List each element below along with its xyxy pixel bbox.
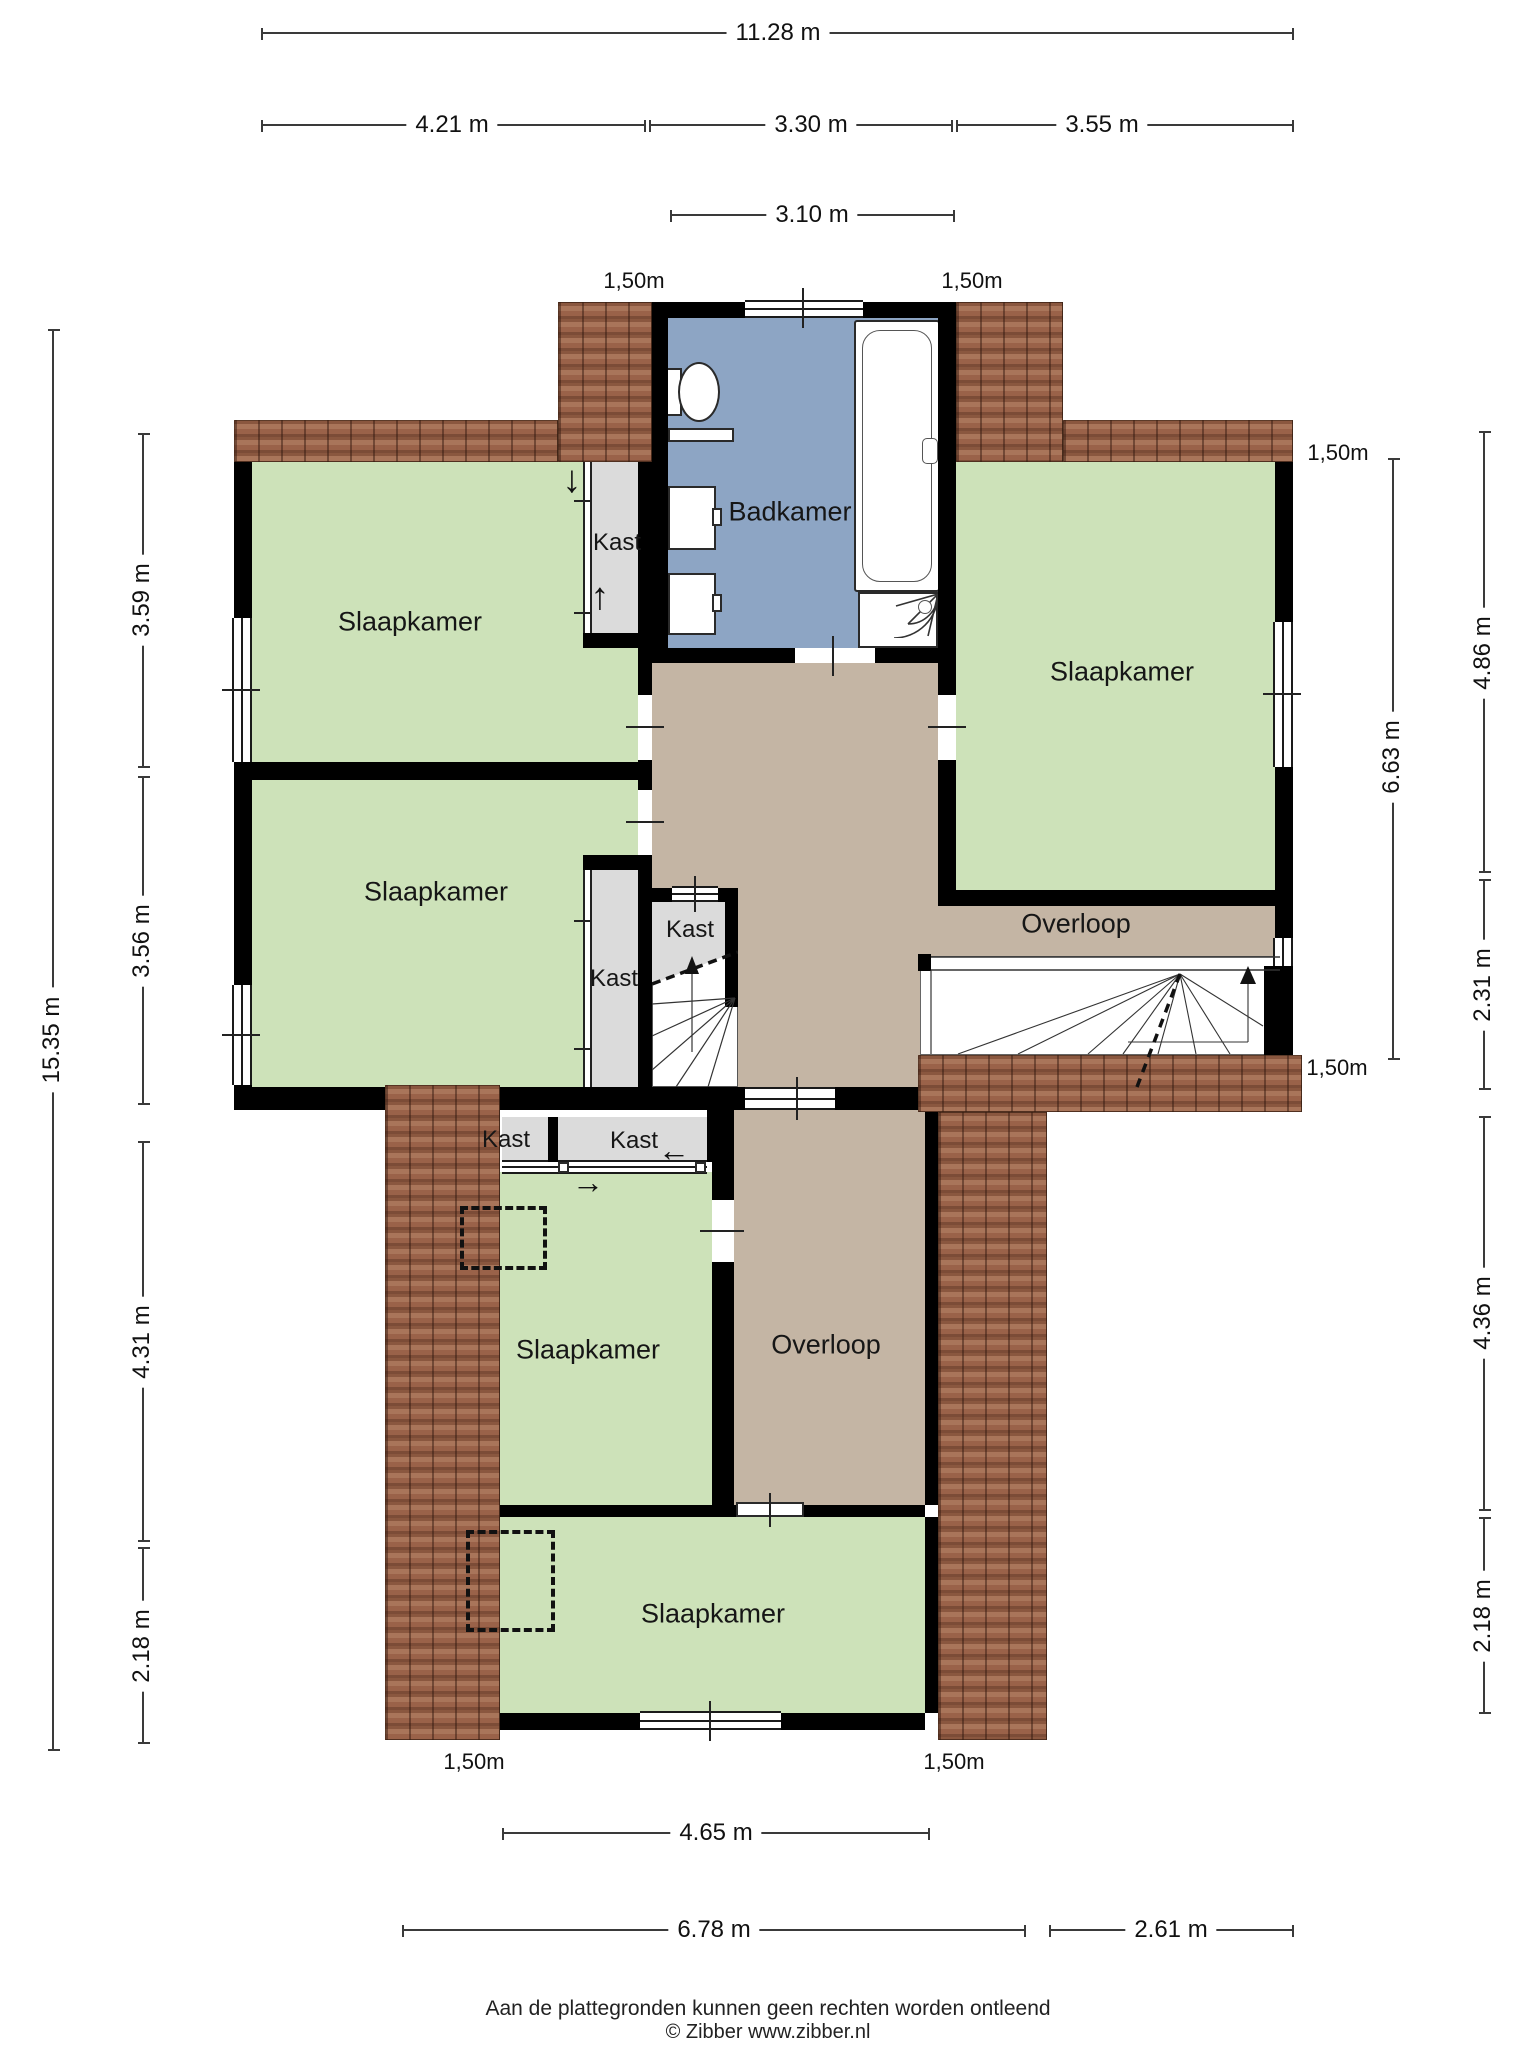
closet-arrow-up-icon: ↑	[591, 578, 610, 616]
dim-label-right-2: 2.31 m	[1469, 939, 1497, 1030]
dim-label-left-4: 2.18 m	[128, 1600, 156, 1691]
wall	[835, 1087, 920, 1110]
closet-label-top: Kast	[593, 529, 641, 557]
wall	[875, 648, 938, 663]
height-marker-right-mid: 1,50m	[1306, 1055, 1367, 1081]
dashed-kneewall-bottom	[466, 1530, 555, 1632]
wall	[781, 1713, 925, 1730]
door-tick	[832, 636, 834, 676]
sink-icon	[668, 573, 716, 635]
shower-fan-icon	[894, 594, 938, 638]
wall	[938, 760, 956, 906]
wall	[500, 1505, 736, 1517]
wall	[500, 1713, 640, 1730]
closet-label-lower-left: Kast	[482, 1126, 530, 1154]
sink-faucet-icon	[712, 508, 722, 526]
wall	[234, 455, 252, 618]
window-tick	[222, 689, 260, 691]
height-marker-bottom-right: 1,50m	[923, 1749, 984, 1775]
window	[745, 1087, 835, 1110]
room-label-bathroom: Badkamer	[728, 497, 851, 528]
wall	[583, 855, 652, 870]
door-tick	[928, 726, 966, 728]
window-tick	[802, 288, 804, 328]
closet-label-tall: Kast	[590, 965, 638, 993]
room-label-bedroom-mid-left: Slaapkamer	[364, 877, 508, 908]
room-label-landing-upper: Overloop	[1021, 909, 1131, 940]
dim-label-top-left: 4.21 m	[406, 111, 497, 139]
wall	[583, 633, 652, 648]
door-tick	[626, 821, 664, 823]
door-tick	[700, 1230, 744, 1232]
wall	[938, 663, 956, 695]
roof-strip-left	[385, 1085, 500, 1740]
wall	[804, 1505, 925, 1517]
wall	[956, 890, 1293, 906]
closet-arrow-left-icon: ←	[658, 1134, 690, 1166]
dim-label-bottom-right: 2.61 m	[1125, 1916, 1216, 1944]
dim-label-left-total: 15.35 m	[38, 988, 66, 1093]
wall	[938, 302, 956, 663]
toilet-bowl-icon	[678, 362, 720, 422]
window-tick	[709, 1701, 711, 1741]
dashed-kneewall-lower	[460, 1206, 547, 1270]
track-tick	[574, 920, 592, 922]
roof-band-top-right	[1063, 420, 1293, 462]
wall	[234, 762, 252, 985]
height-marker-top-right: 1,50m	[941, 268, 1002, 294]
track-end-square	[695, 1162, 706, 1173]
height-marker-bottom-left: 1,50m	[443, 1749, 504, 1775]
dim-label-right-3: 4.36 m	[1469, 1267, 1497, 1358]
footer-copyright: © Zibber www.zibber.nl	[0, 2021, 1536, 2044]
dim-label-right-4: 2.18 m	[1469, 1570, 1497, 1661]
roof-dormer-left	[558, 302, 652, 462]
wall	[1275, 767, 1293, 940]
track-end-square	[558, 1162, 569, 1173]
wall	[548, 1117, 558, 1162]
bathroom-shelf	[668, 428, 734, 442]
dim-label-right-inner: 6.63 m	[1378, 711, 1406, 802]
dim-label-left-3: 4.31 m	[128, 1296, 156, 1387]
wall	[712, 1262, 734, 1505]
wall	[718, 888, 738, 902]
wall	[707, 1110, 734, 1162]
window-tick	[222, 1034, 260, 1036]
dim-label-top-right: 3.55 m	[1056, 111, 1147, 139]
floorplan-canvas: ↓ ↑ ← → Slaapkamer Slaapkamer Slaapkamer…	[0, 0, 1536, 2048]
height-marker-right-top: 1,50m	[1307, 440, 1368, 466]
footer-disclaimer: Aan de plattegronden kunnen geen rechten…	[0, 1997, 1536, 2021]
dim-label-right-1: 4.86 m	[1469, 607, 1497, 698]
dim-label-left-1: 3.59 m	[128, 554, 156, 645]
room-label-bedroom-bottom: Slaapkamer	[641, 1599, 785, 1630]
sink-faucet-icon	[712, 594, 722, 612]
roof-band-top-left	[234, 420, 558, 462]
height-marker-top-left: 1,50m	[603, 268, 664, 294]
wall	[638, 855, 652, 1087]
wall	[234, 762, 652, 780]
track-tick	[574, 1048, 592, 1050]
shower-head-icon	[918, 600, 932, 614]
sink-icon	[668, 486, 716, 550]
door-tick	[626, 726, 664, 728]
closet-arrow-down-icon: ↓	[563, 461, 582, 499]
wall	[925, 1112, 938, 1505]
wall	[925, 1517, 938, 1713]
door-tick	[769, 1493, 771, 1527]
closet-label-lower-right: Kast	[610, 1127, 658, 1155]
dim-label-top-mid: 3.30 m	[765, 111, 856, 139]
room-label-bedroom-top-right: Slaapkamer	[1050, 657, 1194, 688]
bathtub-faucet-icon	[922, 438, 938, 464]
dim-label-dormer: 3.10 m	[766, 201, 857, 229]
roof-strip-right	[938, 1112, 1047, 1740]
roof-dormer-right	[956, 302, 1063, 462]
track-tick	[574, 612, 592, 614]
wall	[1275, 455, 1293, 622]
dim-label-left-2: 3.56 m	[128, 895, 156, 986]
room-fill-landing-lower	[722, 1110, 925, 1505]
wall	[712, 1162, 734, 1200]
wall	[638, 760, 652, 790]
wall	[652, 888, 672, 902]
window	[745, 300, 863, 318]
room-label-bedroom-lower: Slaapkamer	[516, 1335, 660, 1366]
stairs-right-flight	[918, 954, 1293, 1094]
dim-label-bottom-left: 6.78 m	[668, 1916, 759, 1944]
door	[795, 648, 875, 663]
wall	[652, 648, 795, 663]
room-label-bedroom-top-left: Slaapkamer	[338, 607, 482, 638]
closet-arrow-right-icon: →	[572, 1166, 604, 1198]
window-tick	[796, 1077, 798, 1120]
room-label-landing-lower: Overloop	[771, 1330, 881, 1361]
wall	[652, 302, 668, 663]
window-tick	[1263, 693, 1301, 695]
dim-label-top-total: 11.28 m	[727, 19, 830, 47]
closet-label-stair: Kast	[666, 916, 714, 944]
dim-label-bottom-inner: 4.65 m	[670, 1819, 761, 1847]
